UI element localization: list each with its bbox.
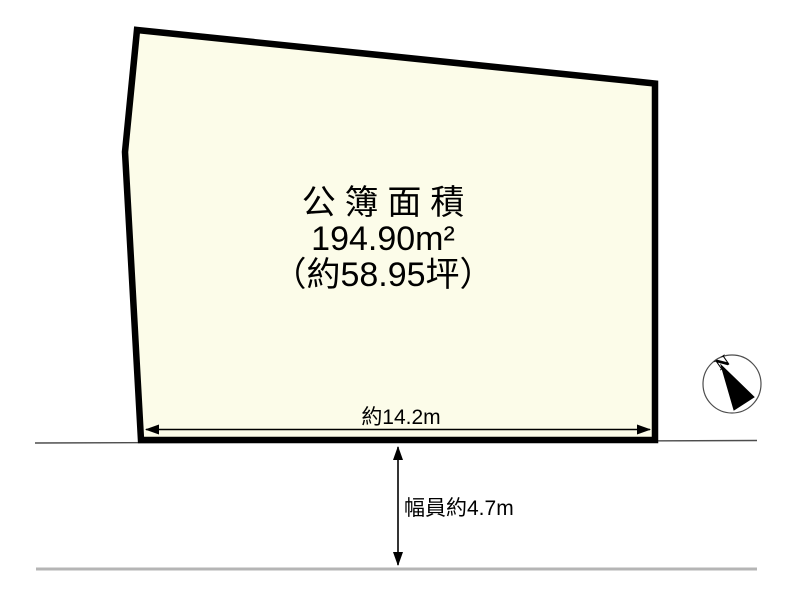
plot-drawing-canvas: N: [0, 0, 800, 600]
area-tsubo: （約58.95坪）: [272, 257, 493, 293]
frontage-label: 約14.2m: [361, 401, 440, 431]
area-title: 公簿面積: [272, 185, 493, 221]
area-value: 194.90m²: [272, 221, 493, 257]
compass: N: [703, 351, 761, 413]
road-width-label: 幅員約4.7m: [404, 492, 514, 522]
land-plot-diagram: N 公簿面積 194.90m² （約58.95坪） 約14.2m 幅員約4.7m: [0, 0, 800, 600]
area-info-block: 公簿面積 194.90m² （約58.95坪）: [272, 185, 493, 293]
